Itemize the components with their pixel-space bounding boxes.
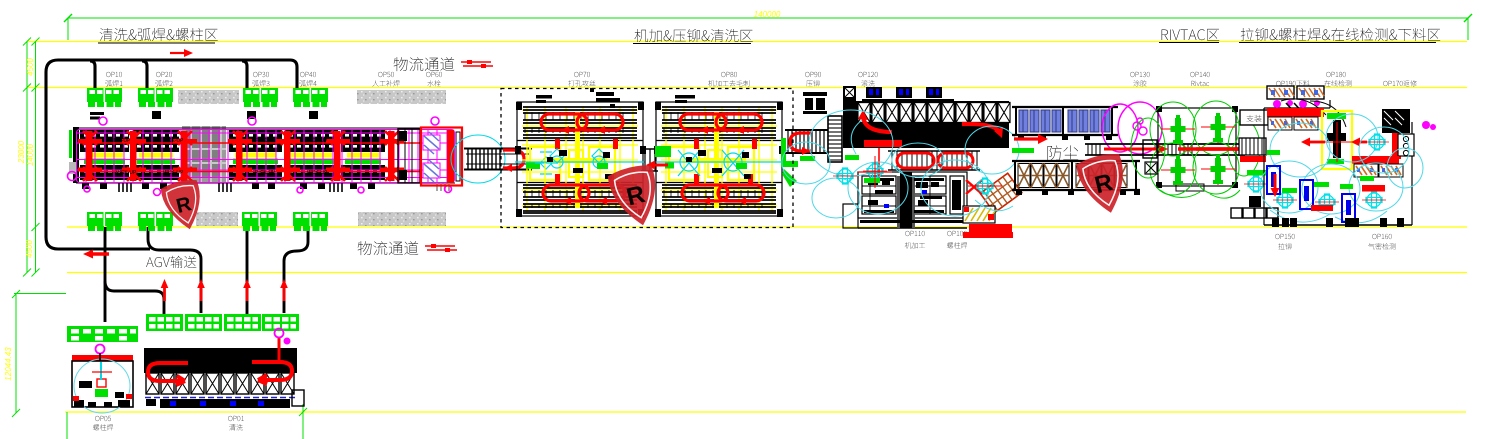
svg-text:PICK-UP: PICK-UP: [163, 138, 184, 144]
svg-text:PICK-UP: PICK-UP: [255, 138, 276, 144]
svg-text:12044.43: 12044.43: [4, 347, 13, 381]
svg-text:PICK-UP: PICK-UP: [163, 170, 184, 176]
svg-text:4500: 4500: [25, 240, 34, 258]
svg-text:PICK-UP: PICK-UP: [110, 138, 131, 144]
svg-text:140000: 140000: [754, 10, 781, 19]
svg-text:PICK-UP: PICK-UP: [255, 170, 276, 176]
svg-text:23000: 23000: [17, 140, 26, 164]
svg-text:4500: 4500: [26, 58, 35, 76]
svg-text:PICK-UP: PICK-UP: [307, 138, 328, 144]
svg-text:PICK-UP: PICK-UP: [116, 170, 137, 176]
svg-text:14000: 14000: [26, 143, 35, 166]
svg-text:PICK-UP: PICK-UP: [307, 170, 328, 176]
